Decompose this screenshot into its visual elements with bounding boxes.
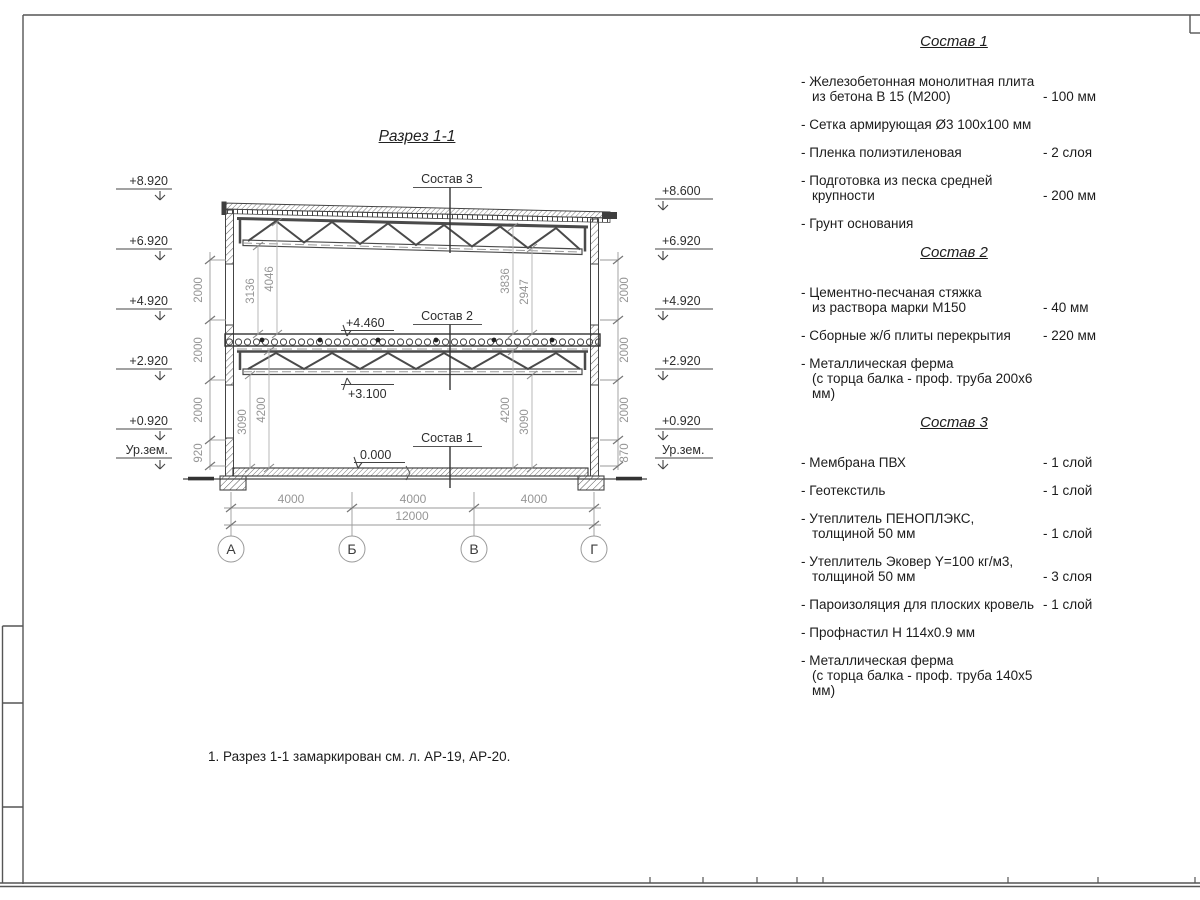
svg-text:3836: 3836 bbox=[500, 268, 512, 294]
sostav3-title: Состав 3 bbox=[801, 415, 1107, 430]
roof-assembly bbox=[222, 202, 618, 255]
svg-text:4000: 4000 bbox=[400, 492, 427, 506]
list-item: - Металлическая ферма(с торца балка - пр… bbox=[801, 356, 1107, 401]
floor2-assembly bbox=[225, 334, 600, 375]
svg-text:2947: 2947 bbox=[519, 279, 531, 305]
svg-text:Ур.зем.: Ур.зем. bbox=[126, 443, 168, 457]
roof-right-beam bbox=[602, 212, 617, 219]
list-item: - Сетка армирующая Ø3 100х100 мм bbox=[801, 117, 1107, 132]
svg-text:2000: 2000 bbox=[193, 337, 205, 363]
list-item: - Утеплитель ПЕНОПЛЭКС,толщиной 50 мм - … bbox=[801, 511, 1107, 541]
svg-text:4000: 4000 bbox=[521, 492, 548, 506]
list-item: - Утеплитель Эковер Y=100 кг/м3,толщиной… bbox=[801, 554, 1107, 584]
list-item: - Пароизоляция для плоских кровель - 1 с… bbox=[801, 597, 1107, 612]
axis-bubbles: А Б В Г bbox=[218, 536, 607, 562]
list-item: - Железобетонная монолитная плитаиз бето… bbox=[801, 74, 1107, 104]
list-item: - Металлическая ферма(с торца балка - пр… bbox=[801, 653, 1107, 698]
svg-text:4046: 4046 bbox=[264, 266, 276, 292]
svg-text:+6.920: +6.920 bbox=[662, 234, 701, 248]
section-title: Разрез 1-1 bbox=[352, 128, 482, 146]
list-item: - Профнастил Н 114х0.9 мм bbox=[801, 625, 1107, 640]
elevation-marks-left: +8.920 +6.920 +4.920 +2.920 +0.920 Ур.зе… bbox=[116, 174, 172, 469]
axis-label-a: А bbox=[226, 541, 236, 557]
svg-text:+6.920: +6.920 bbox=[129, 234, 168, 248]
svg-text:+2.920: +2.920 bbox=[662, 354, 701, 368]
axis-label-g: Г bbox=[590, 541, 598, 557]
roof-truss bbox=[237, 218, 588, 255]
dims-bottom-labels: 4000 4000 4000 12000 bbox=[278, 492, 548, 523]
svg-text:+0.920: +0.920 bbox=[129, 414, 168, 428]
sostav2-title: Состав 2 bbox=[801, 245, 1107, 260]
list-item: - Пленка полиэтиленовая - 2 слоя bbox=[801, 145, 1107, 160]
svg-text:+0.920: +0.920 bbox=[662, 414, 701, 428]
svg-text:+8.920: +8.920 bbox=[129, 174, 168, 188]
svg-text:3090: 3090 bbox=[519, 409, 531, 435]
mark-floor-zero: 0.000 bbox=[360, 448, 391, 462]
svg-text:3090: 3090 bbox=[237, 409, 249, 435]
callout-sostav3: Состав 3 bbox=[421, 172, 473, 186]
drawing-sheet: +8.920 +6.920 +4.920 +2.920 +0.920 Ур.зе… bbox=[0, 0, 1200, 900]
list-item: - Геотекстиль - 1 слой bbox=[801, 483, 1107, 498]
svg-text:+2.920: +2.920 bbox=[129, 354, 168, 368]
svg-text:2000: 2000 bbox=[619, 337, 631, 363]
svg-text:2000: 2000 bbox=[193, 277, 205, 303]
svg-text:2000: 2000 bbox=[193, 397, 205, 423]
svg-text:4000: 4000 bbox=[278, 492, 305, 506]
list-item: - Грунт основания bbox=[801, 216, 1107, 231]
svg-text:+4.920: +4.920 bbox=[662, 294, 701, 308]
sheet-note: 1. Разрез 1-1 замаркирован см. л. АР-19,… bbox=[208, 749, 510, 764]
callout-sostav2: Состав 2 bbox=[421, 309, 473, 323]
svg-text:+8.600: +8.600 bbox=[662, 184, 701, 198]
axis-label-v: В bbox=[469, 541, 478, 557]
svg-text:920: 920 bbox=[193, 443, 205, 462]
foundation-left bbox=[220, 476, 246, 490]
svg-text:3136: 3136 bbox=[245, 278, 257, 304]
list-item: - Цементно-песчаная стяжкаиз раствора ма… bbox=[801, 285, 1107, 315]
svg-text:12000: 12000 bbox=[395, 509, 429, 523]
dim-chain-left-labels: 2000 2000 2000 920 bbox=[193, 277, 205, 462]
list-item: - Подготовка из песка среднейкрупности -… bbox=[801, 173, 1107, 203]
svg-text:+4.920: +4.920 bbox=[129, 294, 168, 308]
mark-truss-bottom: +3.100 bbox=[348, 387, 387, 401]
title-block-ticks bbox=[650, 877, 1195, 883]
roof-left-cap bbox=[222, 202, 227, 216]
callout-sostav1: Состав 1 bbox=[421, 431, 473, 445]
dim-chain-right-labels: 2000 2000 2000 870 bbox=[619, 277, 631, 462]
svg-text:2000: 2000 bbox=[619, 277, 631, 303]
list-item: - Мембрана ПВХ - 1 слой bbox=[801, 455, 1107, 470]
floor1-assembly bbox=[183, 466, 647, 490]
list-item: - Сборные ж/б плиты перекрытия - 220 мм bbox=[801, 328, 1107, 343]
elevation-marks-right: +8.600 +6.920 +4.920 +2.920 +0.920 Ур.зе… bbox=[655, 184, 713, 469]
floor2-truss bbox=[237, 352, 588, 375]
svg-text:4200: 4200 bbox=[256, 397, 268, 423]
sostav1-title: Состав 1 bbox=[801, 34, 1107, 49]
dim-chain-left bbox=[205, 252, 226, 470]
foundation-right bbox=[578, 476, 604, 490]
svg-text:4200: 4200 bbox=[500, 397, 512, 423]
mark-slab-top: +4.460 bbox=[346, 316, 385, 330]
composition-panel: Состав 1 - Железобетонная монолитная пли… bbox=[801, 34, 1107, 711]
svg-text:Ур.зем.: Ур.зем. bbox=[662, 443, 704, 457]
svg-text:2000: 2000 bbox=[619, 397, 631, 423]
axis-label-b: Б bbox=[347, 541, 356, 557]
svg-text:870: 870 bbox=[619, 443, 631, 462]
